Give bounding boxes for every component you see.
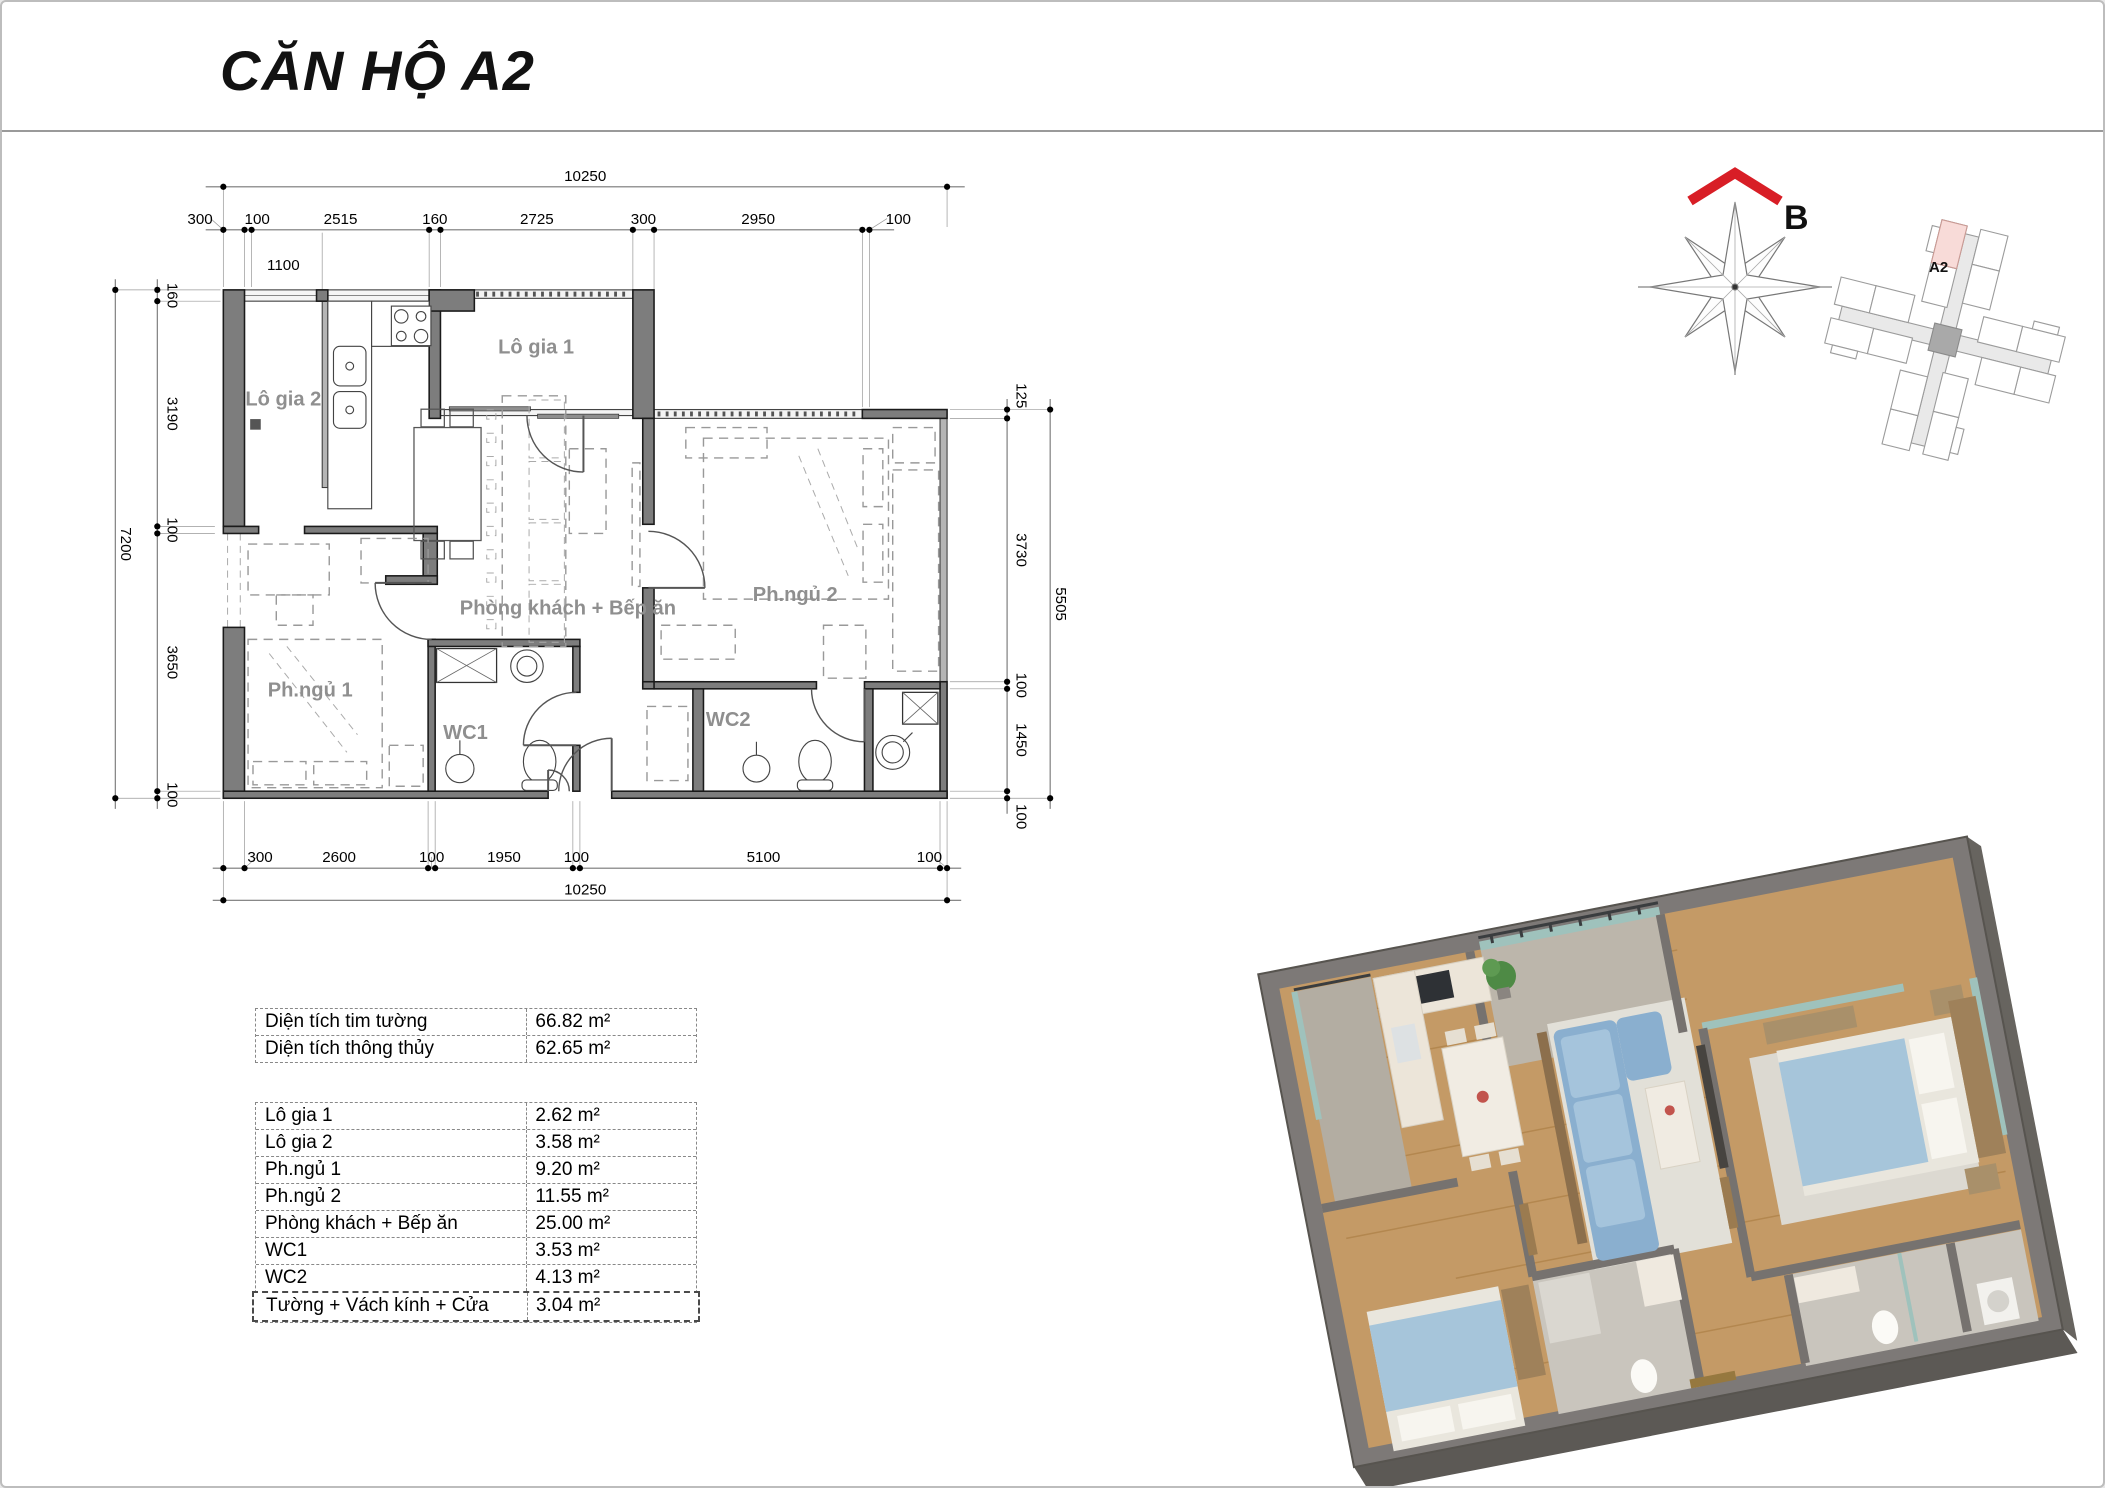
kitchen-fixtures (328, 301, 431, 509)
floor-plan: 10250 300 100 2515 160 2725 300 2950 100… (75, 131, 1106, 943)
dim: 2950 (741, 211, 775, 228)
dim: 300 (187, 211, 212, 228)
row-value: 2.62 m² (526, 1103, 696, 1129)
row-value: 11.55 m² (526, 1184, 696, 1210)
render-3d (1117, 787, 2097, 1487)
table-row: WC2 4.13 m² (256, 1264, 696, 1291)
dim: 300 (631, 211, 656, 228)
row-label: Diện tích tim tường (256, 1009, 526, 1035)
table-row: WC1 3.53 m² (256, 1237, 696, 1264)
row-label: WC2 (256, 1265, 526, 1291)
dim: 125 (1012, 383, 1029, 408)
row-label: Lô gia 1 (256, 1103, 526, 1129)
room-label-logia2: Lô gia 2 (245, 389, 321, 411)
row-label: Ph.ngủ 1 (256, 1157, 526, 1183)
area-detail-table: Lô gia 1 2.62 m² Lô gia 2 3.58 m² Ph.ngủ… (255, 1102, 697, 1323)
basin-icon (743, 755, 770, 782)
compass: B (1632, 157, 1842, 387)
dim: 100 (886, 211, 911, 228)
row-value: 4.13 m² (526, 1265, 696, 1291)
row-value: 66.82 m² (526, 1009, 696, 1035)
dim: 100 (1012, 804, 1029, 829)
room-label-wc2: WC2 (706, 709, 751, 731)
table-row: Lô gia 2 3.58 m² (256, 1129, 696, 1156)
dim: 100 (164, 517, 181, 542)
row-value: 62.65 m² (526, 1036, 696, 1062)
basin-icon (446, 754, 474, 782)
row-value: 3.04 m² (527, 1293, 698, 1320)
north-arrow-icon (1690, 173, 1780, 201)
dim-top-sub: 1100 (267, 257, 300, 274)
table-row: Phòng khách + Bếp ăn 25.00 m² (256, 1210, 696, 1237)
washer-icon (511, 650, 543, 682)
sheet: CĂN HỘ A2 (0, 0, 2105, 1488)
toilet-icon (799, 740, 831, 782)
dim: 2600 (322, 849, 356, 866)
dim: 100 (1012, 673, 1029, 698)
dim-right-total: 5505 (1052, 587, 1069, 621)
row-value: 9.20 m² (526, 1157, 696, 1183)
dim: 100 (245, 211, 270, 228)
dim-top-total: 10250 (564, 168, 606, 185)
row-label: Diện tích thông thủy (256, 1036, 526, 1062)
dim: 100 (917, 849, 942, 866)
dim: 100 (564, 849, 589, 866)
page-title: CĂN HỘ A2 (220, 38, 535, 103)
table-row: Diện tích thông thủy 62.65 m² (256, 1035, 696, 1062)
table-row: Lô gia 1 2.62 m² (256, 1103, 696, 1129)
dim: 2725 (520, 211, 554, 228)
row-value: 3.58 m² (526, 1130, 696, 1156)
row-value: 25.00 m² (526, 1211, 696, 1237)
dim: 1450 (1012, 723, 1029, 757)
north-label: B (1784, 199, 1809, 237)
dim-bottom-total: 10250 (564, 882, 606, 899)
table-row: Diện tích tim tường 66.82 m² (256, 1009, 696, 1035)
site-locator: A2 (1817, 202, 2077, 477)
table-row: Ph.ngủ 2 11.55 m² (256, 1183, 696, 1210)
dim: 100 (164, 782, 181, 807)
dim: 160 (164, 283, 181, 308)
row-label: WC1 (256, 1238, 526, 1264)
room-label-bed2: Ph.ngủ 2 (753, 584, 838, 606)
dim: 1950 (487, 849, 521, 866)
dim: 5100 (747, 849, 781, 866)
row-value: 3.53 m² (526, 1238, 696, 1264)
dim: 3190 (164, 397, 181, 431)
drain-icon (250, 419, 261, 430)
dim: 160 (422, 211, 447, 228)
room-label-wc1: WC1 (443, 722, 488, 744)
dim: 3730 (1012, 533, 1029, 567)
dim: 2515 (324, 211, 358, 228)
row-label: Lô gia 2 (256, 1130, 526, 1156)
room-label-bed1: Ph.ngủ 1 (268, 680, 353, 702)
dimension-texts: 10250 300 100 2515 160 2725 300 2950 100… (117, 168, 1069, 899)
table-row-total: Tường + Vách kính + Cửa 3.04 m² (252, 1291, 700, 1322)
row-label: Tường + Vách kính + Cửa (254, 1293, 527, 1320)
table-row: Ph.ngủ 1 9.20 m² (256, 1156, 696, 1183)
area-summary-table: Diện tích tim tường 66.82 m² Diện tích t… (255, 1008, 697, 1063)
dim: 3650 (164, 645, 181, 679)
unit-a2-label: A2 (1929, 259, 1948, 276)
toilet-icon (523, 740, 555, 782)
room-label-logia1: Lô gia 1 (498, 336, 574, 358)
dim: 100 (419, 849, 444, 866)
room-label-living: Phòng khách + Bếp ăn (460, 598, 676, 620)
row-label: Ph.ngủ 2 (256, 1184, 526, 1210)
dim: 300 (247, 849, 272, 866)
row-label: Phòng khách + Bếp ăn (256, 1211, 526, 1237)
dim-left-total: 7200 (117, 527, 134, 561)
